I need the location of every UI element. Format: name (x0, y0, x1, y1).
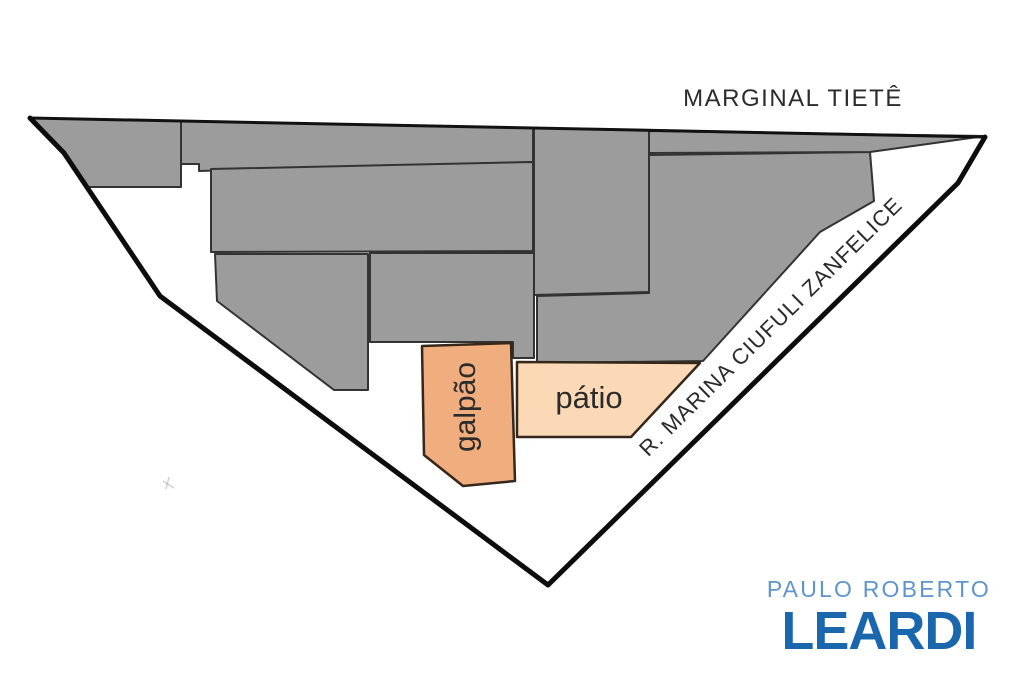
small-smudge-artifact (163, 477, 174, 489)
parcel-tall-center (534, 128, 649, 295)
warehouse-label: galpão (449, 362, 483, 452)
brand-logo-top-line: PAULO ROBERTO (767, 578, 991, 601)
brand-logo: PAULO ROBERTO LEARDI (767, 578, 991, 658)
parcel-lower-left (215, 254, 368, 390)
site-plan-diagram: MARGINAL TIETÊ R. MARINA CIUFULI ZANFELI… (0, 0, 1024, 682)
courtyard-label: pátio (555, 380, 622, 416)
brand-logo-name: LEARDI (767, 604, 991, 658)
parcel-top-left (30, 118, 181, 187)
parcel-middle-wide (211, 162, 533, 252)
top-street-label: MARGINAL TIETÊ (683, 85, 903, 113)
